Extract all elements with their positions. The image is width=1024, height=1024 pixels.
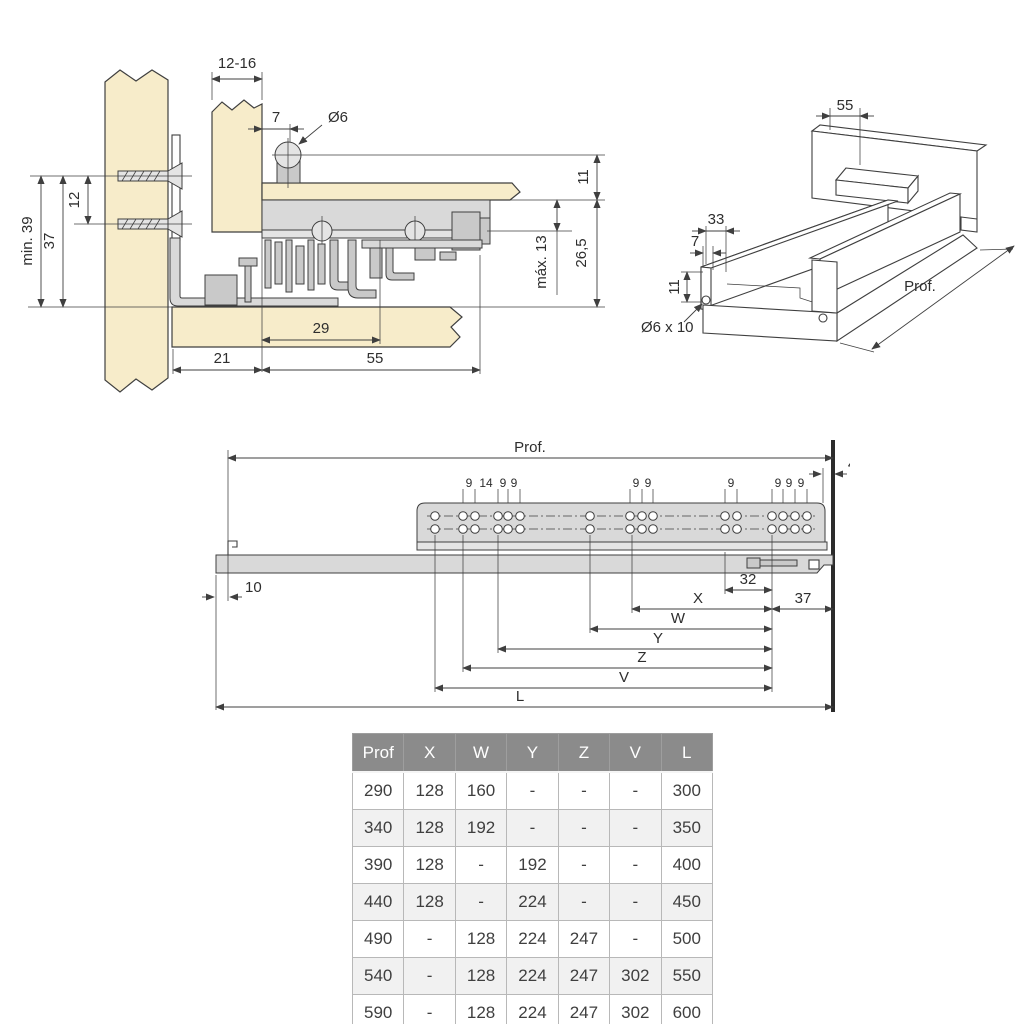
dim-21: 21 [173,349,262,374]
hole-pitch-dims: 9 14 9 9 9 9 9 9 9 9 [463,476,807,503]
dim-label-iso55: 55 [837,97,854,114]
dim-label-z: Z [637,649,646,666]
col-header-x: X [404,734,455,773]
cell: - [610,810,661,847]
table-row: 590 - 128 224 247 302 600 [353,995,713,1024]
cell: 550 [661,958,712,995]
cell: 224 [507,995,558,1024]
cell: 540 [353,958,404,995]
cell: - [404,995,455,1024]
cell: 290 [353,772,404,810]
dim-label-10: 10 [245,579,262,596]
dim-label-o6: Ø6 [328,109,348,126]
cell: 390 [353,847,404,884]
dim-label-prof: Prof. [514,439,546,456]
cell: 224 [507,958,558,995]
col-header-y: Y [507,734,558,773]
dim-iso-11: 11 [666,272,703,302]
dim-label-iso11: 11 [666,279,683,295]
cell: 450 [661,884,712,921]
cell: 247 [558,995,609,1024]
pitch-label: 9 [798,476,805,490]
cell: 247 [558,958,609,995]
dim-label-7: 7 [272,109,280,126]
dim-label-o6x10: Ø6 x 10 [641,319,694,336]
dim-10: 10 [202,575,262,710]
cell: - [404,921,455,958]
dim-y: Y [498,630,772,649]
cell: - [455,847,506,884]
cell: 128 [404,772,455,810]
dim-label-min39: min. 39 [19,216,36,265]
dim-label-11: 11 [575,169,592,185]
cabinet-side-panel [105,70,168,392]
pitch-label: 14 [479,476,493,490]
spec-sheet: 12-16 7 Ø6 11 26,5 máx. 13 min. 39 37 12 [0,0,1024,1024]
cell: 224 [507,921,558,958]
cell: 128 [404,810,455,847]
dim-label-21: 21 [214,350,231,367]
dim-37: 37 [772,590,833,609]
table-row: 440 128 - 224 - - 450 [353,884,713,921]
dim-4: 4 [809,456,850,503]
col-header-w: W [455,734,506,773]
dim-label-26-5: 26,5 [573,238,590,267]
cell: 192 [507,847,558,884]
cell: 590 [353,995,404,1024]
cell: 128 [455,921,506,958]
cell: 300 [661,772,712,810]
cell: 302 [610,995,661,1024]
cell: 128 [404,884,455,921]
pitch-label: 9 [645,476,652,490]
dim-pin-diameter: Ø6 [299,109,348,144]
table-row: 290 128 160 - - - 300 [353,772,713,810]
cell: - [558,810,609,847]
dim-label-v: V [619,669,629,686]
dim-label-y: Y [653,630,663,647]
cell: - [558,884,609,921]
dim-label-x: X [693,590,703,607]
dim-x: X [632,590,772,609]
dim-12: 12 [66,176,88,224]
dim-37: 37 [41,176,63,307]
dim-label-iso-prof: Prof. [904,278,936,295]
cell: - [507,772,558,810]
pitch-label: 9 [728,476,735,490]
dim-min-39: min. 39 [19,176,41,307]
pitch-label: 9 [786,476,793,490]
pitch-label: 9 [511,476,518,490]
col-header-l: L [661,734,712,773]
drawer-bottom-panel [262,183,520,200]
rear-pin [272,138,605,188]
cell: - [455,884,506,921]
dim-z: Z [463,649,772,668]
dim-label-iso7: 7 [691,233,699,250]
dim-label-12: 12 [66,192,83,209]
dim-iso-hole: Ø6 x 10 [641,304,702,336]
dim-w: W [590,610,772,629]
cell: - [610,921,661,958]
table-row: 490 - 128 224 247 - 500 [353,921,713,958]
pitch-label: 9 [775,476,782,490]
dim-panel-thickness: 12-16 [212,55,262,100]
dim-label-55: 55 [367,350,384,367]
cell: 400 [661,847,712,884]
dim-label-4: 4 [848,456,850,473]
dim-26-5: 26,5 [573,200,597,307]
cell: - [558,847,609,884]
cell: 192 [455,810,506,847]
side-view-drawing: 9 14 9 9 9 9 9 9 9 9 Prof. 4 10 [190,435,850,720]
cell: 224 [507,884,558,921]
dim-max-13: máx. 13 [533,200,557,295]
dim-label-w: W [671,610,686,627]
cell: 350 [661,810,712,847]
dimension-table: Prof X W Y Z V L 290 128 160 - - - 300 3… [352,733,713,1024]
table-header-row: Prof X W Y Z V L [353,734,713,773]
col-header-v: V [610,734,661,773]
col-header-z: Z [558,734,609,773]
dim-32: 32 [725,571,772,590]
dim-l: L [216,688,833,707]
cell: 500 [661,921,712,958]
cell: - [507,810,558,847]
table-row: 540 - 128 224 247 302 550 [353,958,713,995]
dim-label-12-16: 12-16 [218,55,256,72]
cell: 302 [610,958,661,995]
dim-v: V [435,669,772,688]
cell: - [558,772,609,810]
dim-label-29: 29 [313,320,330,337]
drawer-back-panel [212,100,262,232]
dim-11-right: 11 [575,155,597,200]
cell: - [610,772,661,810]
cell: 247 [558,921,609,958]
dim-label-l: L [516,688,524,705]
cell: 128 [455,958,506,995]
cell: - [610,847,661,884]
table-row: 390 128 - 192 - - 400 [353,847,713,884]
drawer-isometric [701,125,986,341]
cell: 128 [404,847,455,884]
dim-label-37: 37 [795,590,812,607]
pitch-label: 9 [633,476,640,490]
dim-label-37v: 37 [41,233,58,250]
isometric-drawing: 55 33 7 11 Ø6 x 10 Prof. [640,90,1024,370]
cell: 340 [353,810,404,847]
cell: 128 [455,995,506,1024]
table-row: 340 128 192 - - - 350 [353,810,713,847]
dim-label-32: 32 [740,571,757,588]
cell: 600 [661,995,712,1024]
cell: - [610,884,661,921]
dim-label-iso33: 33 [708,211,725,228]
pitch-label: 9 [466,476,473,490]
cell: - [404,958,455,995]
pitch-label: 9 [500,476,507,490]
cell: 490 [353,921,404,958]
cell: 160 [455,772,506,810]
dim-label-max13: máx. 13 [533,235,550,288]
cross-section-drawing: 12-16 7 Ø6 11 26,5 máx. 13 min. 39 37 12 [0,0,620,430]
col-header-prof: Prof [353,734,404,773]
cell: 440 [353,884,404,921]
